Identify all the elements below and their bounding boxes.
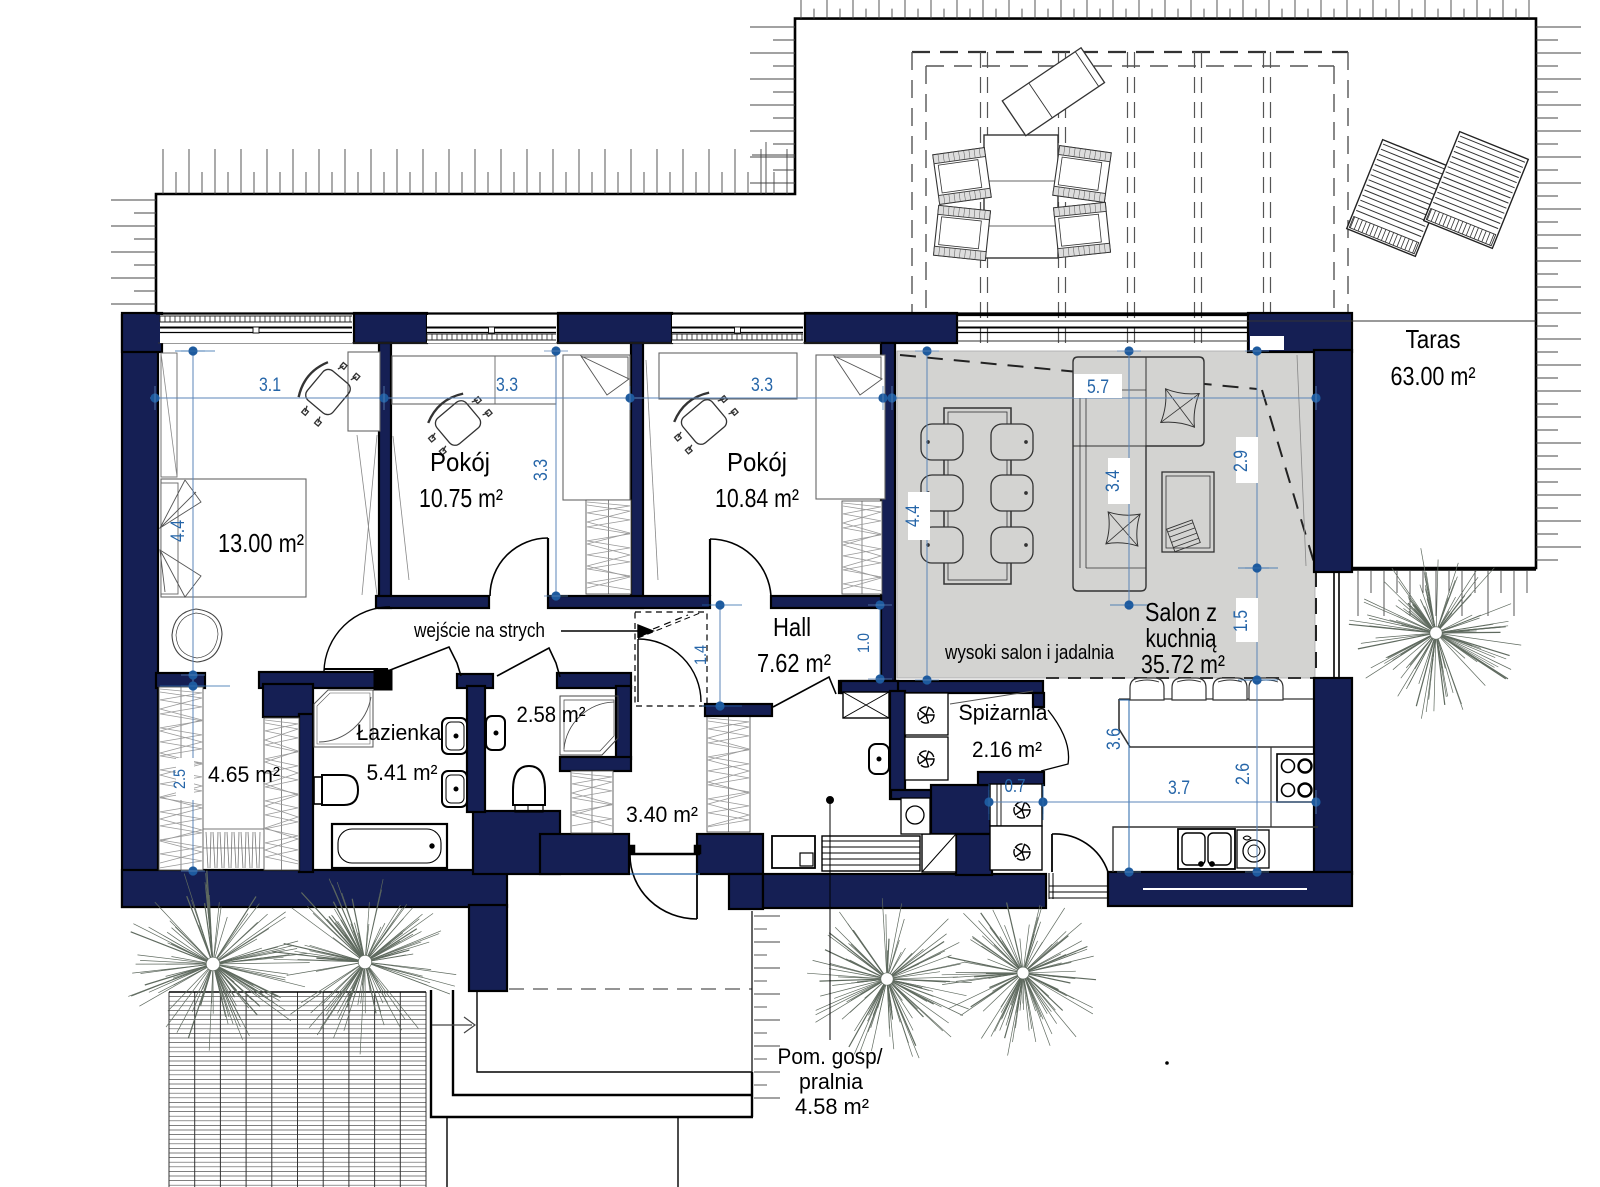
- svg-text:2.5: 2.5: [170, 769, 189, 789]
- svg-text:4.4: 4.4: [168, 520, 189, 542]
- svg-text:2.6: 2.6: [1233, 763, 1254, 785]
- svg-text:Spiżarnia: Spiżarnia: [959, 700, 1049, 725]
- svg-text:10.84 m²: 10.84 m²: [715, 483, 799, 513]
- svg-text:5.41 m²: 5.41 m²: [367, 760, 438, 785]
- svg-text:2.16 m²: 2.16 m²: [972, 737, 1042, 762]
- svg-text:3.3: 3.3: [751, 375, 773, 396]
- svg-text:Pokój: Pokój: [430, 447, 490, 477]
- svg-text:Pom. gosp/: Pom. gosp/: [778, 1044, 884, 1069]
- svg-text:wysoki salon i jadalnia: wysoki salon i jadalnia: [944, 642, 1115, 664]
- svg-text:5.7: 5.7: [1087, 377, 1109, 398]
- svg-text:10.75 m²: 10.75 m²: [419, 483, 503, 513]
- svg-text:3.6: 3.6: [1104, 728, 1125, 750]
- svg-text:Taras: Taras: [1406, 324, 1461, 354]
- svg-text:3.4: 3.4: [1103, 470, 1124, 492]
- svg-text:1.5: 1.5: [1231, 610, 1252, 632]
- svg-text:2.9: 2.9: [1231, 450, 1252, 472]
- svg-text:1.4: 1.4: [691, 645, 710, 665]
- svg-text:63.00 m²: 63.00 m²: [1391, 361, 1476, 391]
- svg-text:0.7: 0.7: [1005, 776, 1026, 796]
- svg-text:3.3: 3.3: [531, 459, 552, 481]
- svg-text:Pokój: Pokój: [727, 447, 787, 477]
- svg-text:35.72 m²: 35.72 m²: [1141, 649, 1225, 679]
- svg-text:1.0: 1.0: [854, 633, 873, 653]
- svg-text:3.1: 3.1: [259, 375, 281, 396]
- svg-text:4.4: 4.4: [903, 505, 924, 527]
- svg-text:7.62 m²: 7.62 m²: [757, 648, 831, 678]
- svg-text:wejście na strych: wejście na strych: [413, 620, 545, 642]
- svg-text:3.40 m²: 3.40 m²: [626, 802, 698, 827]
- svg-text:Łazienka: Łazienka: [357, 720, 443, 745]
- svg-text:13.00 m²: 13.00 m²: [218, 528, 304, 558]
- svg-text:3.7: 3.7: [1168, 778, 1190, 799]
- svg-text:4.65 m²: 4.65 m²: [208, 762, 280, 787]
- svg-text:Hall: Hall: [773, 612, 811, 642]
- svg-text:2.58 m²: 2.58 m²: [517, 702, 586, 727]
- svg-text:pralnia: pralnia: [799, 1069, 864, 1094]
- svg-text:4.58 m²: 4.58 m²: [795, 1094, 869, 1119]
- svg-text:3.3: 3.3: [496, 375, 518, 396]
